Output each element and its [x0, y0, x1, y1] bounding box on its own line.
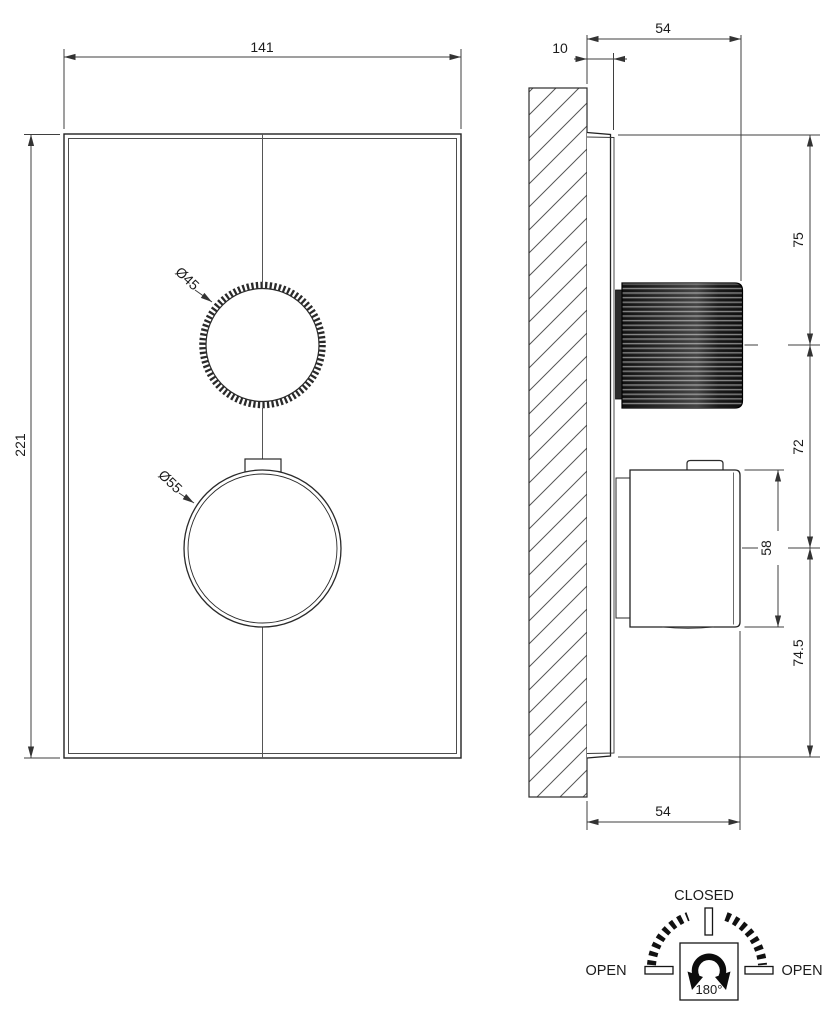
dim-10-label: 10: [552, 40, 568, 56]
dim-74-5: 74.5: [790, 548, 810, 757]
closed-label: CLOSED: [674, 888, 734, 904]
tick-closed-position: [705, 908, 713, 935]
side-knob-55: [616, 461, 740, 629]
dim-75-label: 75: [790, 232, 806, 248]
side-view: 54 10 75 72 58 7: [529, 20, 820, 830]
tick-open-right-position: [745, 967, 773, 975]
thermostatic-mixer-drawing: Ø45 Ø55 141 221: [0, 0, 835, 1024]
dim-72-label: 72: [790, 439, 806, 455]
side-knob-55-body: [630, 470, 740, 627]
dim-54-bottom-label: 54: [655, 803, 671, 819]
dim-74-5-label: 74.5: [790, 639, 806, 666]
dim-58: 58: [758, 470, 778, 627]
side-knob-55-tab: [687, 461, 723, 471]
side-knob-55-stem: [616, 478, 630, 618]
dim-75: 75: [790, 135, 810, 345]
rotation-diagram: CLOSED OPEN OPEN 180°: [585, 888, 822, 1000]
dim-141-label: 141: [250, 39, 274, 55]
dim-221-label: 221: [12, 433, 28, 457]
side-knob-45: [616, 283, 743, 408]
front-view: Ø45 Ø55 141 221: [12, 39, 461, 758]
dim-221: 221: [12, 135, 60, 759]
tick-open-left-position: [645, 967, 673, 975]
dim-72: 72: [790, 345, 810, 548]
knob-55-outer: [184, 470, 341, 627]
side-plate-profile: [587, 133, 614, 759]
open-right-label: OPEN: [781, 963, 822, 979]
knob-45-face: [206, 289, 319, 402]
technical-drawing-canvas: Ø45 Ø55 141 221: [0, 0, 835, 1024]
dim-141: 141: [64, 39, 461, 129]
dim-54-top-label: 54: [655, 20, 671, 36]
front-knob-45: [200, 282, 326, 408]
angle-180-label: 180°: [696, 982, 723, 997]
open-left-label: OPEN: [585, 963, 626, 979]
wall-section: [529, 88, 587, 797]
side-knob-45-stem: [616, 290, 623, 399]
dim-58-label: 58: [758, 540, 774, 556]
